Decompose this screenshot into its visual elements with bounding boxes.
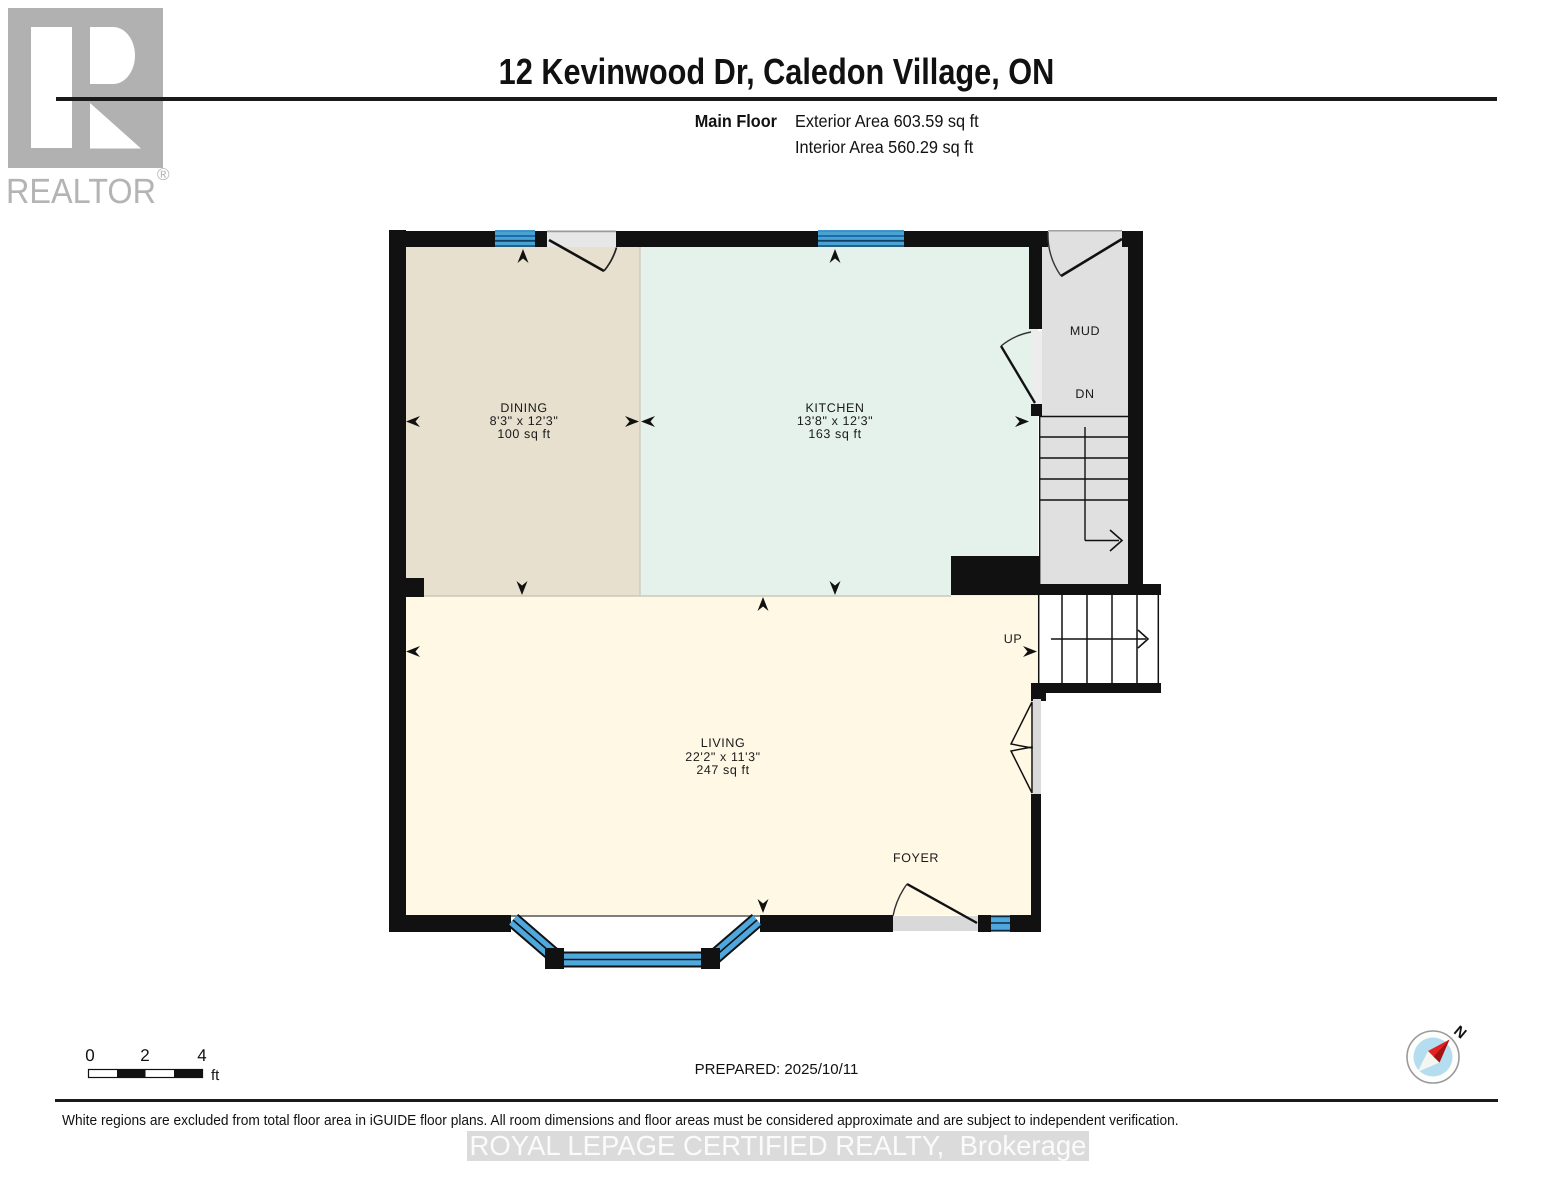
svg-text:100 sq ft: 100 sq ft xyxy=(497,427,550,441)
svg-text:DN: DN xyxy=(1075,387,1094,401)
svg-text:13'8" x 12'3": 13'8" x 12'3" xyxy=(797,414,873,428)
svg-text:LIVING: LIVING xyxy=(701,736,746,750)
svg-text:8'3" x 12'3": 8'3" x 12'3" xyxy=(490,414,559,428)
svg-text:163 sq ft: 163 sq ft xyxy=(808,427,861,441)
svg-text:22'2" x 11'3": 22'2" x 11'3" xyxy=(685,750,760,764)
svg-text:KITCHEN: KITCHEN xyxy=(805,401,864,415)
svg-text:UP: UP xyxy=(1004,632,1023,646)
svg-text:247 sq ft: 247 sq ft xyxy=(696,763,749,777)
svg-text:DINING: DINING xyxy=(500,401,547,415)
svg-text:MUD: MUD xyxy=(1070,324,1100,338)
svg-text:FOYER: FOYER xyxy=(893,851,939,865)
